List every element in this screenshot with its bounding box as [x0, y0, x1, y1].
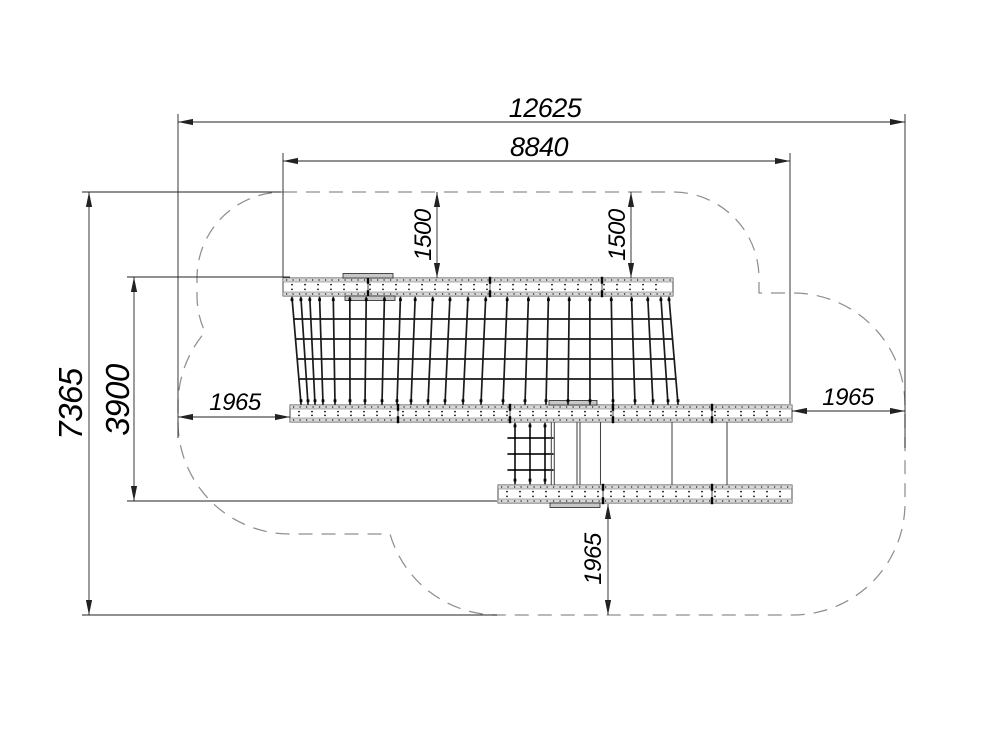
bottom-beam: [290, 404, 792, 423]
extension-lines: [82, 114, 905, 615]
plan-view-drawing: 12625 8840 1500 1500 1965 1965 1965 3900…: [0, 0, 1000, 750]
dim-label-safety-zone-length: 12625: [509, 93, 583, 123]
dim-label-equipment-width: 3900: [99, 363, 136, 436]
dimension-lines: [86, 119, 905, 615]
dim-label-equipment-length: 8840: [510, 132, 569, 162]
dim-label-net-clearance-right: 1500: [604, 208, 631, 261]
safety-zone-boundary: [178, 192, 905, 615]
climbing-net: [291, 298, 680, 405]
dim-label-side-clearance-right: 1965: [822, 384, 875, 411]
dim-label-safety-zone-width: 7365: [52, 367, 89, 440]
drawing-sheet: 12625 8840 1500 1500 1965 1965 1965 3900…: [0, 0, 1000, 750]
rope-ladder-assembly: [508, 423, 727, 485]
dim-label-net-clearance-left: 1500: [410, 208, 437, 261]
safety-zone-outline: [178, 192, 905, 615]
dim-label-side-clearance-left: 1965: [209, 389, 262, 416]
dim-label-bottom-clearance: 1965: [580, 532, 607, 585]
top-beam: [283, 277, 673, 297]
lower-plank: [498, 484, 792, 504]
